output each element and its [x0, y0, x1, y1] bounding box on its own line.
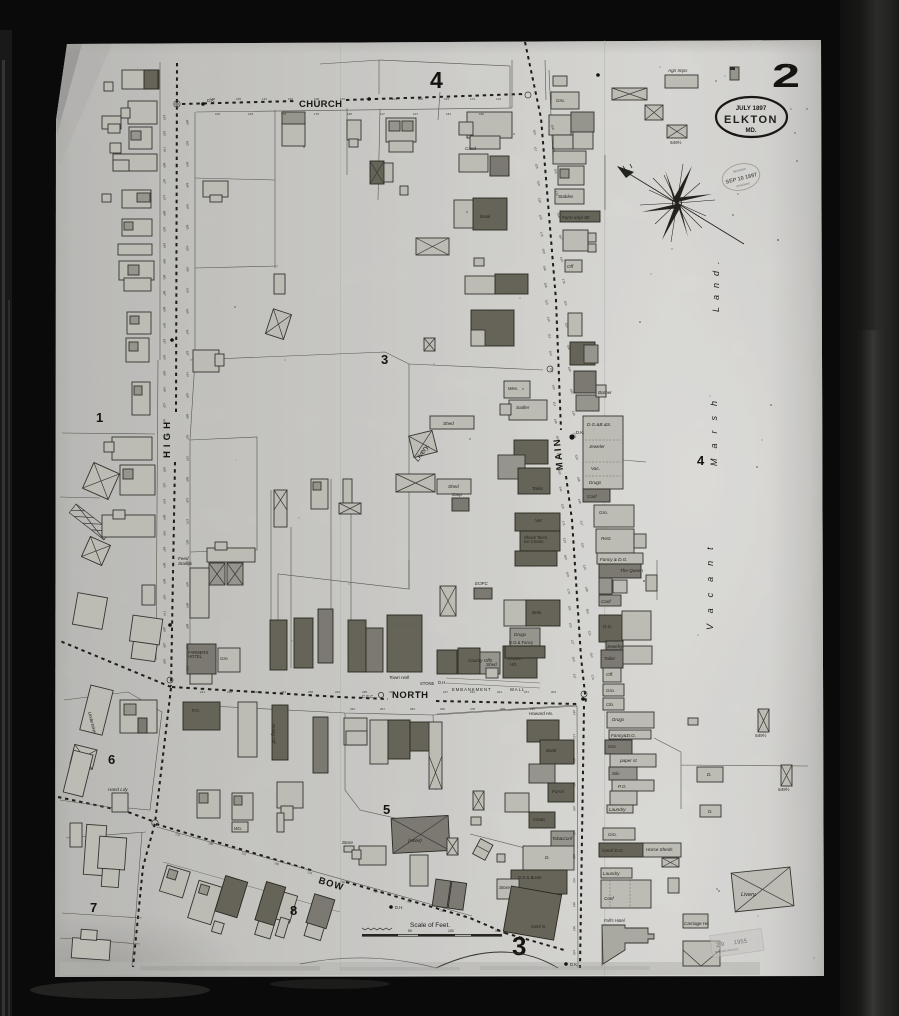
svg-text:MD.: MD. — [746, 128, 757, 134]
svg-text:Vac.: Vac. — [591, 466, 600, 471]
svg-text:229: 229 — [572, 806, 576, 812]
svg-text:222: 222 — [350, 707, 355, 711]
svg-text:Store: Store — [342, 840, 353, 845]
svg-text:140: 140 — [496, 97, 501, 101]
svg-text:170: 170 — [340, 97, 345, 101]
svg-text:(Hotel): (Hotel) — [408, 838, 422, 843]
svg-text:138: 138 — [314, 97, 319, 101]
svg-text:549½: 549½ — [778, 786, 790, 792]
svg-text:101: 101 — [392, 97, 397, 101]
svg-text:Befo: Befo — [532, 610, 542, 615]
svg-text:Wo.: Wo. — [234, 826, 242, 831]
svg-text:Barber: Barber — [598, 390, 612, 395]
svg-text:Wes.: Wes. — [508, 386, 518, 391]
svg-text:243: 243 — [572, 710, 576, 716]
svg-text:175: 175 — [314, 112, 319, 116]
svg-text:201: 201 — [497, 690, 502, 694]
svg-text:262: 262 — [572, 878, 576, 884]
svg-text:Clo.: Clo. — [606, 702, 614, 707]
svg-text:Sadler: Sadler — [516, 405, 530, 410]
svg-text:133: 133 — [262, 97, 267, 101]
svg-text:D.K.: D.K. — [576, 430, 584, 435]
svg-text:JULY 1897: JULY 1897 — [736, 105, 767, 112]
svg-text:8: 8 — [290, 903, 297, 918]
svg-text:Conf: Conf — [604, 896, 614, 901]
svg-text:174: 174 — [470, 97, 475, 101]
svg-text:Conf: Conf — [587, 494, 597, 499]
svg-text:Tailor: Tailor — [604, 656, 616, 661]
svg-text:D.: D. — [708, 809, 713, 814]
svg-text:245: 245 — [389, 690, 394, 694]
svg-text:Off.: Off. — [606, 672, 613, 677]
svg-text:Shed: Shed — [443, 421, 454, 426]
svg-text:Gro.: Gro. — [556, 98, 565, 103]
svg-text:NORTH: NORTH — [392, 690, 430, 701]
svg-text:ELKTON: ELKTON — [724, 114, 778, 126]
svg-text:102: 102 — [215, 112, 220, 116]
svg-text:6: 6 — [108, 752, 115, 767]
svg-text:258: 258 — [572, 758, 576, 764]
svg-text:307: 307 — [572, 782, 576, 788]
svg-text:Clo&s: Clo&s — [533, 817, 546, 822]
svg-text:Hand Ldy: Hand Ldy — [108, 787, 128, 792]
svg-text:Town Hall: Town Hall — [389, 675, 410, 680]
svg-text:D.G.& Boots: D.G.& Boots — [518, 875, 541, 880]
svg-text:Ice Cream: Ice Cream — [524, 539, 544, 544]
svg-text:210: 210 — [572, 854, 576, 860]
svg-text:Printg Off: Printg Off — [271, 724, 276, 744]
svg-text:180: 180 — [347, 112, 352, 116]
svg-text:Agri Imps: Agri Imps — [667, 68, 688, 73]
svg-text:4: 4 — [430, 67, 443, 93]
svg-text:181: 181 — [446, 112, 451, 116]
svg-text:STONE: STONE — [420, 681, 435, 686]
svg-text:221: 221 — [200, 690, 205, 694]
svg-text:D.: D. — [545, 855, 550, 860]
svg-text:148: 148 — [248, 112, 253, 116]
svg-text:D.G.&B.&S.: D.G.&B.&S. — [587, 422, 611, 427]
svg-text:Land.: Land. — [711, 254, 721, 312]
svg-text:178: 178 — [281, 112, 286, 116]
svg-text:222: 222 — [335, 690, 340, 694]
svg-text:300: 300 — [440, 707, 445, 711]
svg-text:3: 3 — [381, 352, 388, 367]
svg-text:Store: Store — [499, 885, 510, 890]
svg-text:CHURCH: CHURCH — [299, 99, 344, 110]
svg-text:Fancy&D.G.: Fancy&D.G. — [611, 733, 636, 738]
svg-text:Carriage Ho: Carriage Ho — [684, 921, 709, 926]
svg-text:Gro: Gro — [608, 744, 616, 749]
svg-text:Marsh: Marsh — [709, 391, 719, 466]
svg-text:Laundry: Laundry — [603, 871, 620, 876]
svg-text:50: 50 — [408, 929, 412, 933]
svg-text:P.O.: P.O. — [618, 784, 627, 789]
svg-text:C.E.C.: C.E.C. — [362, 694, 374, 699]
svg-text:Jeweler: Jeweler — [588, 444, 605, 449]
svg-text:Drugs: Drugs — [612, 717, 625, 722]
svg-text:217: 217 — [416, 690, 421, 694]
svg-text:283: 283 — [572, 926, 576, 932]
svg-text:160: 160 — [572, 950, 576, 956]
svg-text:295: 295 — [530, 707, 535, 711]
svg-text:Conf: Conf — [601, 599, 611, 604]
svg-text:D.K.: D.K. — [570, 962, 578, 967]
svg-text:Howard Ho.: Howard Ho. — [529, 711, 553, 716]
svg-text:Scale of Feet.: Scale of Feet. — [410, 922, 450, 929]
svg-text:1: 1 — [96, 410, 103, 425]
svg-text:100: 100 — [448, 929, 454, 933]
svg-text:Jewelry: Jewelry — [606, 644, 623, 649]
svg-text:The Queen: The Queen — [620, 568, 643, 573]
svg-text:Gro.: Gro. — [599, 510, 608, 515]
svg-text:126: 126 — [572, 734, 576, 740]
svg-text:D.: D. — [707, 772, 712, 777]
svg-text:Vacant: Vacant — [705, 536, 715, 630]
svg-text:Carp: Carp — [452, 492, 462, 497]
svg-text:107: 107 — [413, 112, 418, 116]
svg-text:Furnit: Furnit — [552, 789, 564, 794]
svg-text:D.K.: D.K. — [207, 98, 215, 103]
svg-text:Shed: Shed — [448, 484, 459, 489]
svg-text:3: 3 — [512, 931, 526, 961]
svg-text:HO.: HO. — [510, 662, 517, 667]
svg-text:143: 143 — [366, 97, 371, 101]
svg-text:267: 267 — [380, 707, 385, 711]
svg-text:D.G.: D.G. — [603, 624, 612, 629]
svg-text:549½: 549½ — [755, 732, 767, 738]
svg-text:Bank: Bank — [480, 214, 491, 219]
svg-text:Vet: Vet — [535, 518, 542, 523]
svg-text:Fancy & D.G.: Fancy & D.G. — [600, 557, 628, 562]
svg-text:247: 247 — [443, 690, 448, 694]
svg-text:Genl S.: Genl S. — [531, 924, 546, 929]
svg-text:Stables: Stables — [558, 194, 574, 199]
svg-text:Farm Impl Str: Farm Impl Str — [562, 215, 590, 220]
svg-text:243: 243 — [281, 690, 286, 694]
svg-text:155: 155 — [236, 97, 241, 101]
svg-text:252: 252 — [410, 707, 415, 711]
svg-text:Laundry: Laundry — [609, 807, 626, 812]
svg-text:153: 153 — [444, 97, 449, 101]
svg-text:Horse Sheds: Horse Sheds — [646, 847, 673, 852]
svg-text:D.H.: D.H. — [438, 680, 446, 685]
svg-text:D.G.& Fancy: D.G.& Fancy — [509, 640, 534, 645]
svg-text:549½: 549½ — [670, 139, 682, 145]
svg-text:278: 278 — [470, 707, 475, 711]
svg-text:Gro.: Gro. — [606, 688, 615, 693]
svg-text:Gro: Gro — [220, 656, 228, 661]
svg-text:2: 2 — [772, 57, 800, 94]
svg-text:Genrl D.G.: Genrl D.G. — [602, 848, 624, 853]
svg-text:258: 258 — [500, 707, 505, 711]
svg-text:180: 180 — [479, 112, 484, 116]
svg-text:229: 229 — [227, 690, 232, 694]
svg-text:258: 258 — [308, 690, 313, 694]
svg-text:Tailor: Tailor — [532, 486, 544, 491]
svg-text:200: 200 — [418, 97, 423, 101]
svg-text:EOFC: EOFC — [475, 581, 488, 586]
svg-text:222: 222 — [254, 690, 259, 694]
svg-text:P.O.: P.O. — [192, 708, 200, 713]
svg-text:5: 5 — [383, 802, 390, 817]
svg-text:Livery.: Livery. — [741, 892, 757, 898]
svg-text:169: 169 — [572, 830, 576, 836]
svg-text:Tob&Conf: Tob&Conf — [552, 836, 573, 841]
svg-text:HOTEL: HOTEL — [188, 654, 203, 659]
svg-text:Silv: Silv — [612, 771, 620, 776]
svg-text:117: 117 — [380, 112, 385, 116]
svg-text:238: 238 — [362, 690, 367, 694]
svg-text:166: 166 — [288, 97, 293, 101]
svg-text:Gro.: Gro. — [608, 832, 617, 837]
svg-text:Bank: Bank — [546, 748, 557, 753]
svg-text:Drugs: Drugs — [514, 632, 527, 637]
svg-text:7: 7 — [90, 900, 97, 915]
svg-text:D.H.: D.H. — [395, 905, 403, 910]
svg-text:284: 284 — [572, 902, 576, 908]
svg-text:150: 150 — [495, 929, 501, 933]
svg-text:Rest.: Rest. — [601, 536, 612, 541]
svg-text:203: 203 — [551, 690, 556, 694]
svg-text:WALL: WALL — [510, 687, 525, 692]
svg-text:Off: Off — [567, 264, 574, 269]
svg-text:EMBANKMENT: EMBANKMENT — [452, 687, 492, 692]
svg-text:2 9: 2 9 — [716, 942, 726, 949]
svg-text:Drugs: Drugs — [589, 480, 602, 485]
svg-text:Fall's Hotel.: Fall's Hotel. — [604, 918, 626, 923]
svg-text:paper st: paper st — [619, 758, 637, 763]
svg-text:Shed: Shed — [486, 662, 497, 667]
svg-text:4: 4 — [697, 453, 705, 468]
svg-text:Cand: Cand — [465, 146, 476, 151]
